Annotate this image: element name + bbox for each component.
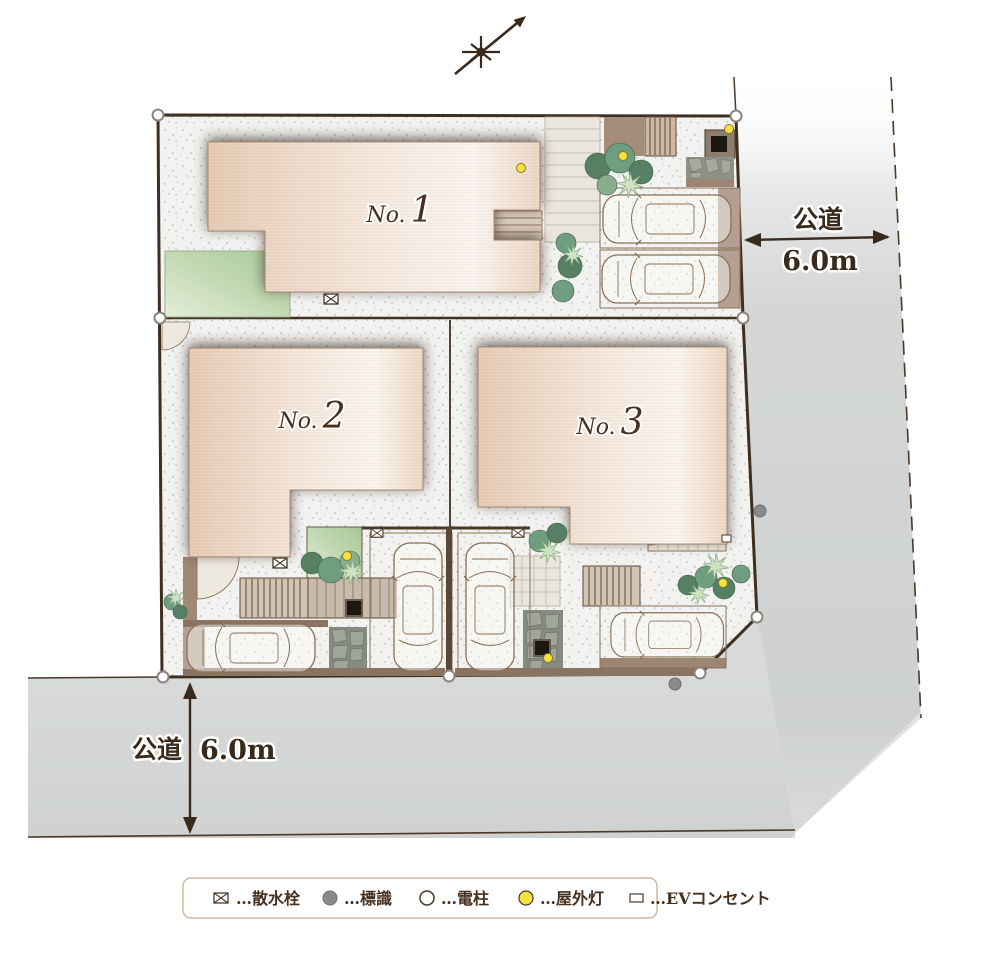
- outdoor-light-marker: [544, 654, 553, 663]
- outdoor-light-marker: [517, 164, 526, 173]
- tree-canopy: [732, 565, 750, 583]
- road-top-fade: [733, 77, 893, 185]
- pole-symbol: [420, 891, 434, 905]
- lot1-terrace-curb: [686, 179, 734, 187]
- legend-label-sprinkler: …散水栓: [236, 889, 301, 908]
- utility-pole-marker: [738, 313, 749, 324]
- road-right-label: 公道: [793, 205, 843, 234]
- site-plan-page: No. 1 No. 2 No. 3: [0, 0, 1000, 953]
- legend-item-ev-outlet: …EVコンセント: [630, 889, 771, 908]
- road-bottom-top-edge-line: [28, 677, 160, 678]
- lot1-ev-station: [711, 136, 727, 152]
- utility-pole-marker: [158, 672, 169, 683]
- sign-symbol: [323, 891, 337, 905]
- car-lot1-a: [603, 193, 731, 245]
- parking-divider-wall: [446, 528, 452, 676]
- road-bottom-label: 公道: [132, 735, 182, 764]
- legend-label-sign: …標識: [344, 889, 392, 908]
- car-lot3-v: [464, 543, 516, 671]
- utility-pole-marker: [444, 671, 455, 682]
- car-lot3-h: [611, 611, 724, 659]
- tree-canopy: [173, 605, 187, 619]
- lot3-curb-band: [600, 658, 726, 668]
- legend-label-pole: …電柱: [441, 889, 489, 908]
- car-lot1-b: [602, 253, 730, 305]
- house-no3-label-prefix: No.: [575, 415, 615, 440]
- legend: …散水栓 …標識 …電柱 …屋外灯 …EVコンセント: [183, 878, 771, 918]
- lot3-walkway: [510, 556, 560, 606]
- lot2-entry-stairs: [240, 578, 308, 618]
- utility-pole-marker: [153, 110, 164, 121]
- north-compass: [455, 16, 526, 74]
- car-lot2-h: [187, 622, 315, 674]
- sign-marker: [669, 678, 681, 690]
- sprinkler-marker: [512, 529, 524, 538]
- compass-arrow-line: [455, 19, 522, 74]
- utility-pole-marker: [731, 111, 742, 122]
- ev-outlet-marker: [722, 535, 731, 542]
- car-lot2-v: [392, 543, 444, 671]
- house-no2-label-number: 2: [322, 396, 346, 437]
- road-bottom-width: 6.0m: [200, 735, 276, 766]
- lot1-walkway: [545, 117, 600, 242]
- legend-label-ev-outlet: …EVコンセント: [650, 889, 771, 908]
- utility-pole-marker: [695, 668, 706, 679]
- sprinkler-symbol: [214, 893, 228, 903]
- outdoor-light-marker: [719, 579, 728, 588]
- sprinkler-marker: [273, 558, 287, 568]
- tree-canopy: [597, 175, 617, 195]
- outdoor-light-marker: [343, 552, 352, 561]
- utility-pole-marker: [155, 313, 166, 324]
- house-no1-label-prefix: No.: [365, 203, 405, 228]
- house-no2-label-prefix: No.: [277, 409, 317, 434]
- tree-canopy: [547, 523, 567, 543]
- compass-center: [477, 48, 486, 57]
- outdoor-light-symbol: [519, 891, 533, 905]
- sprinkler-marker: [324, 294, 338, 304]
- ev-outlet-symbol: [630, 894, 643, 902]
- utility-pole-marker: [752, 612, 763, 623]
- sprinkler-marker: [371, 529, 383, 538]
- site-plan-svg: No. 1 No. 2 No. 3: [0, 0, 1000, 953]
- house-no1-label-number: 1: [411, 190, 434, 231]
- lot2-ev-outlet: [346, 600, 362, 616]
- sign-marker: [754, 505, 766, 517]
- house-no3-label-number: 3: [621, 402, 644, 443]
- outdoor-light-marker: [619, 152, 628, 161]
- legend-label-outdoor-light: …屋外灯: [540, 889, 604, 908]
- tree-canopy: [552, 280, 574, 302]
- road-right-width: 6.0m: [782, 246, 858, 277]
- outdoor-light-marker: [725, 125, 734, 134]
